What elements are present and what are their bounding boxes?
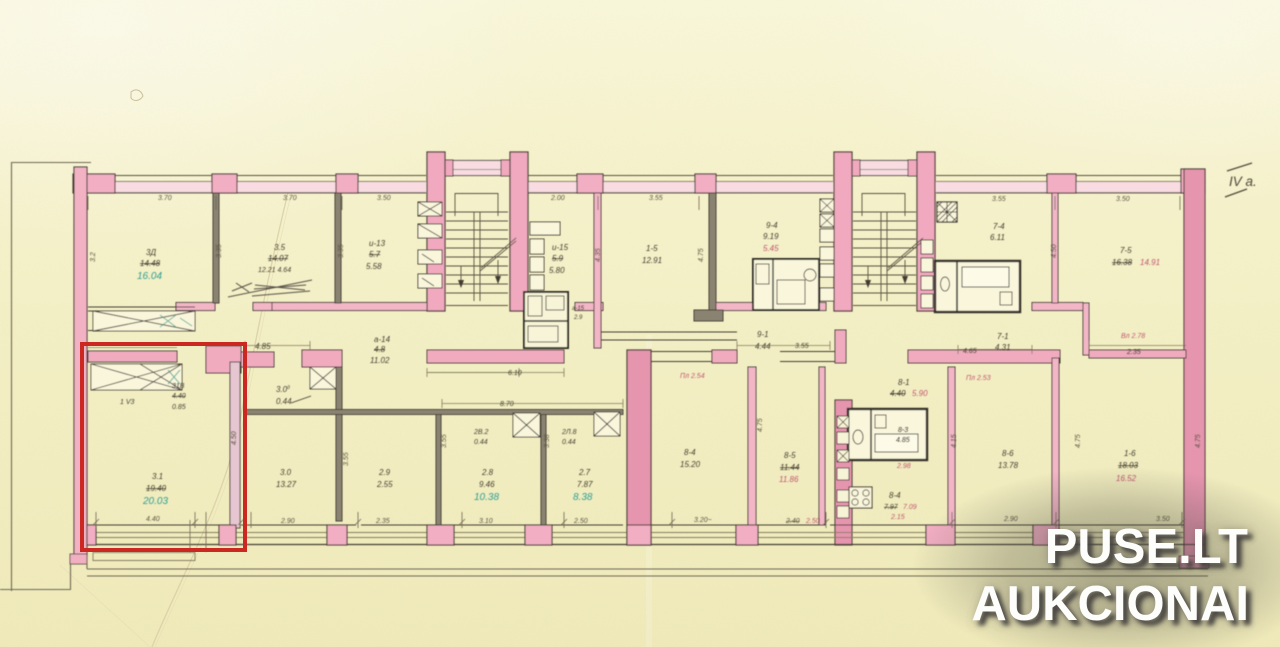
svg-text:19.40: 19.40 [146, 484, 167, 493]
svg-text:2.9: 2.9 [573, 315, 583, 321]
svg-text:14.48: 14.48 [140, 259, 161, 268]
svg-text:2.8: 2.8 [481, 468, 494, 477]
svg-text:6.11: 6.11 [990, 233, 1005, 242]
svg-text:2.35: 2.35 [375, 518, 390, 525]
svg-text:3.55: 3.55 [343, 452, 350, 466]
svg-text:0.44: 0.44 [562, 439, 576, 446]
svg-text:4.75: 4.75 [757, 418, 764, 432]
svg-text:4.40: 4.40 [890, 389, 906, 398]
svg-text:2.9: 2.9 [378, 468, 391, 477]
svg-text:3.55: 3.55 [795, 343, 809, 350]
svg-text:5.7: 5.7 [369, 250, 381, 259]
svg-text:2.7: 2.7 [578, 468, 591, 477]
svg-text:2.50: 2.50 [805, 518, 820, 525]
svg-text:10.38: 10.38 [474, 492, 499, 503]
svg-text:12.21 4.64: 12.21 4.64 [258, 267, 291, 274]
svg-text:Пл 2.54: Пл 2.54 [680, 373, 705, 380]
svg-text:4.50: 4.50 [1051, 244, 1058, 258]
svg-text:5.45: 5.45 [763, 244, 779, 253]
svg-text:8-1: 8-1 [898, 378, 910, 387]
svg-text:и-15: и-15 [552, 243, 569, 252]
svg-text:AUKCIONAI: AUKCIONAI [971, 577, 1249, 631]
svg-text:2.55: 2.55 [376, 480, 393, 489]
svg-text:0.44: 0.44 [276, 397, 292, 406]
svg-text:11.02: 11.02 [370, 356, 390, 365]
svg-text:8.70: 8.70 [500, 401, 514, 408]
svg-text:и-13: и-13 [369, 239, 386, 248]
svg-text:а-15: а-15 [572, 306, 585, 312]
svg-text:4.8: 4.8 [374, 345, 386, 354]
svg-text:3.38: 3.38 [544, 434, 551, 448]
svg-text:Пл 2.53: Пл 2.53 [966, 375, 991, 382]
svg-text:3.10: 3.10 [479, 518, 493, 525]
svg-text:16.04: 16.04 [137, 271, 162, 282]
svg-text:7-1: 7-1 [997, 332, 1009, 341]
svg-text:4.85: 4.85 [255, 342, 271, 351]
svg-text:4.50: 4.50 [231, 431, 238, 445]
svg-text:3.35: 3.35 [216, 244, 223, 258]
svg-text:16.38: 16.38 [1112, 258, 1133, 267]
svg-text:1 V3: 1 V3 [120, 399, 135, 406]
svg-text:8-5: 8-5 [784, 451, 796, 460]
svg-text:12.91: 12.91 [642, 256, 662, 265]
svg-text:3.5: 3.5 [274, 243, 286, 252]
svg-text:3Д: 3Д [146, 248, 156, 257]
svg-text:9-4: 9-4 [766, 221, 778, 230]
svg-text:2.90: 2.90 [280, 518, 295, 525]
svg-text:а-14: а-14 [374, 335, 391, 344]
svg-text:4.15: 4.15 [951, 434, 958, 448]
svg-text:5.80: 5.80 [549, 266, 565, 275]
svg-text:13.27: 13.27 [276, 480, 297, 489]
svg-text:4.44: 4.44 [755, 342, 771, 351]
svg-text:2.00: 2.00 [550, 195, 565, 202]
svg-text:3.0: 3.0 [280, 468, 292, 477]
svg-text:31В: 31В [172, 383, 185, 390]
svg-text:4.85: 4.85 [896, 437, 910, 444]
svg-text:8-3: 8-3 [898, 427, 908, 434]
svg-text:3.55: 3.55 [441, 434, 448, 448]
svg-text:4.75: 4.75 [1075, 434, 1082, 448]
svg-text:3.2: 3.2 [90, 252, 97, 262]
svg-text:Вл 2.78: Вл 2.78 [1121, 333, 1145, 340]
svg-text:5.90: 5.90 [912, 389, 928, 398]
svg-text:2В.2: 2В.2 [473, 429, 489, 436]
svg-text:1-5: 1-5 [646, 244, 658, 253]
svg-text:2.35: 2.35 [1126, 349, 1141, 356]
svg-text:3.55: 3.55 [992, 196, 1006, 203]
svg-text:9-1: 9-1 [757, 330, 769, 339]
svg-text:8-4: 8-4 [684, 448, 696, 457]
svg-text:3.35: 3.35 [338, 244, 345, 258]
svg-text:4.40: 4.40 [172, 393, 186, 400]
svg-text:14.07: 14.07 [268, 254, 289, 263]
svg-text:6.10: 6.10 [508, 370, 522, 377]
svg-text:2Л.8: 2Л.8 [561, 429, 577, 436]
svg-text:20.03: 20.03 [142, 496, 168, 507]
svg-text:0.44: 0.44 [474, 439, 488, 446]
svg-text:0.85: 0.85 [172, 404, 186, 411]
svg-text:3.70: 3.70 [158, 195, 172, 202]
svg-text:11.86: 11.86 [779, 475, 799, 484]
svg-text:3.50: 3.50 [1116, 196, 1130, 203]
svg-text:4.65: 4.65 [963, 348, 977, 355]
svg-text:15.20: 15.20 [680, 460, 701, 469]
svg-text:5.9: 5.9 [552, 254, 564, 263]
svg-text:5.58: 5.58 [366, 262, 382, 271]
svg-text:4.75: 4.75 [1195, 434, 1202, 448]
svg-text:IV a.: IV a. [1229, 174, 1257, 189]
svg-text:9.19: 9.19 [763, 232, 779, 241]
svg-text:7.87: 7.87 [577, 480, 593, 489]
svg-text:4.40: 4.40 [146, 516, 160, 523]
svg-text:3.50: 3.50 [377, 195, 391, 202]
svg-text:14.91: 14.91 [1140, 258, 1160, 267]
svg-text:8.38: 8.38 [573, 492, 593, 503]
svg-text:3.20~: 3.20~ [694, 517, 712, 524]
svg-text:2.50: 2.50 [573, 518, 588, 525]
svg-text:7-5: 7-5 [1120, 246, 1132, 255]
svg-text:9.46: 9.46 [479, 480, 495, 489]
svg-text:4.35: 4.35 [595, 248, 602, 262]
svg-text:11.44: 11.44 [780, 463, 800, 472]
svg-text:3.55: 3.55 [649, 195, 663, 202]
svg-text:3.70: 3.70 [283, 195, 297, 202]
svg-text:2.40: 2.40 [785, 518, 800, 525]
svg-text:4.75: 4.75 [698, 248, 705, 262]
svg-text:4.31: 4.31 [995, 343, 1011, 352]
svg-text:3.1: 3.1 [152, 472, 163, 481]
svg-text:PUSE.LT: PUSE.LT [1045, 520, 1248, 574]
svg-text:7-4: 7-4 [993, 222, 1005, 231]
